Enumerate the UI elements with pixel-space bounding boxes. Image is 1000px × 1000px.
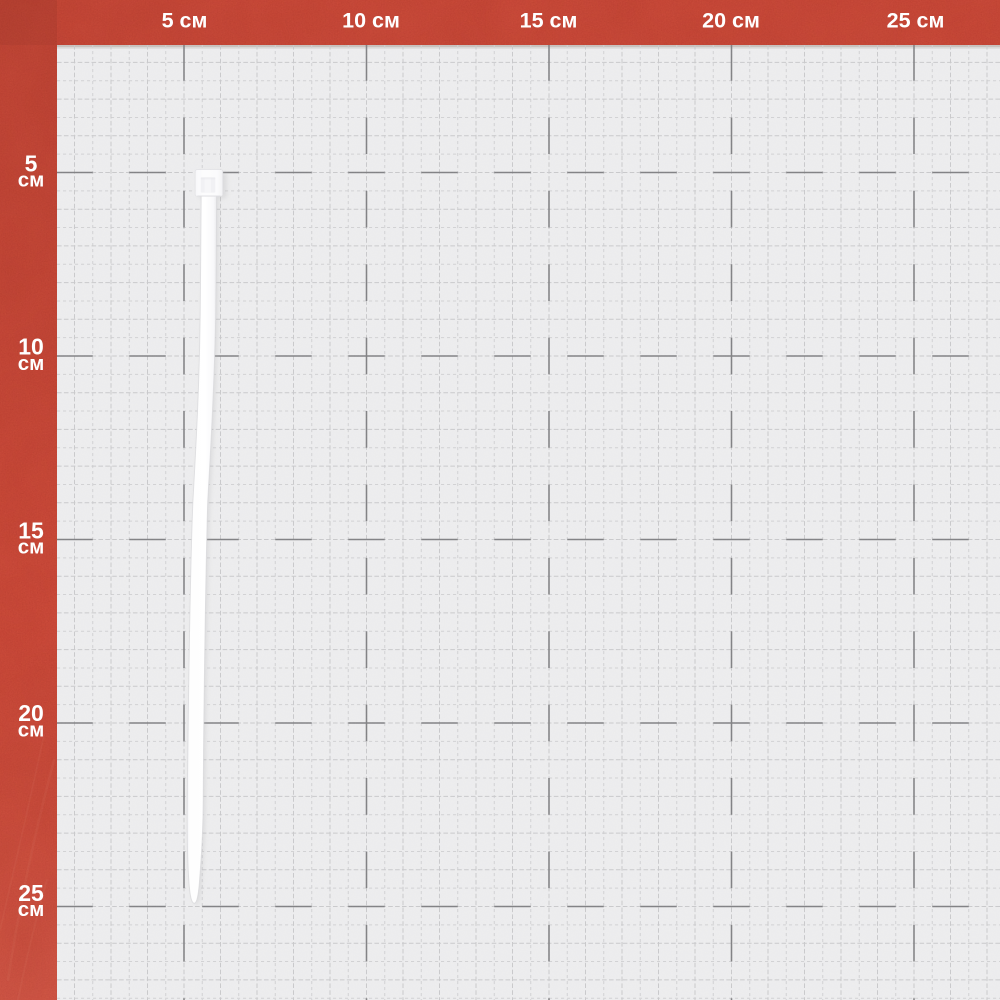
svg-text:20 см: 20 см [702, 8, 760, 32]
svg-text:см: см [18, 898, 45, 921]
svg-text:10 см: 10 см [342, 8, 400, 32]
svg-text:см: см [18, 719, 45, 742]
svg-text:5 см: 5 см [162, 8, 208, 32]
svg-text:см: см [18, 536, 45, 559]
svg-text:15 см: 15 см [520, 8, 578, 32]
svg-text:см: см [18, 169, 45, 192]
svg-text:25 см: 25 см [887, 8, 945, 32]
svg-text:см: см [18, 352, 45, 375]
